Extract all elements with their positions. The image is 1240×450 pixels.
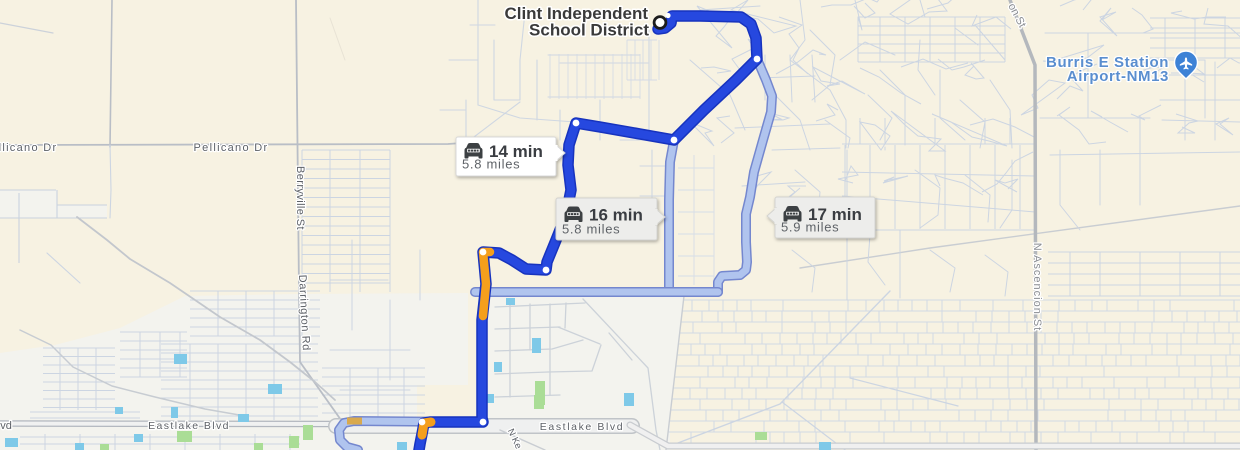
svg-text:Airport-NM13: Airport-NM13 [1067, 68, 1169, 85]
svg-text:5.8 miles: 5.8 miles [562, 222, 620, 237]
svg-text:N Ascencion St: N Ascencion St [1031, 243, 1043, 332]
svg-text:Eastlake Blvd: Eastlake Blvd [148, 420, 230, 432]
svg-text:Pellicano Dr: Pellicano Dr [194, 142, 269, 154]
svg-text:Berryville St: Berryville St [294, 166, 306, 230]
svg-text:School District: School District [529, 21, 649, 40]
svg-text:llicano Dr: llicano Dr [0, 142, 57, 154]
svg-text:5.9 miles: 5.9 miles [781, 220, 839, 235]
svg-text:5.8 miles: 5.8 miles [462, 157, 520, 172]
svg-text:vd: vd [0, 420, 12, 432]
svg-text:Eastlake Blvd: Eastlake Blvd [540, 421, 624, 433]
